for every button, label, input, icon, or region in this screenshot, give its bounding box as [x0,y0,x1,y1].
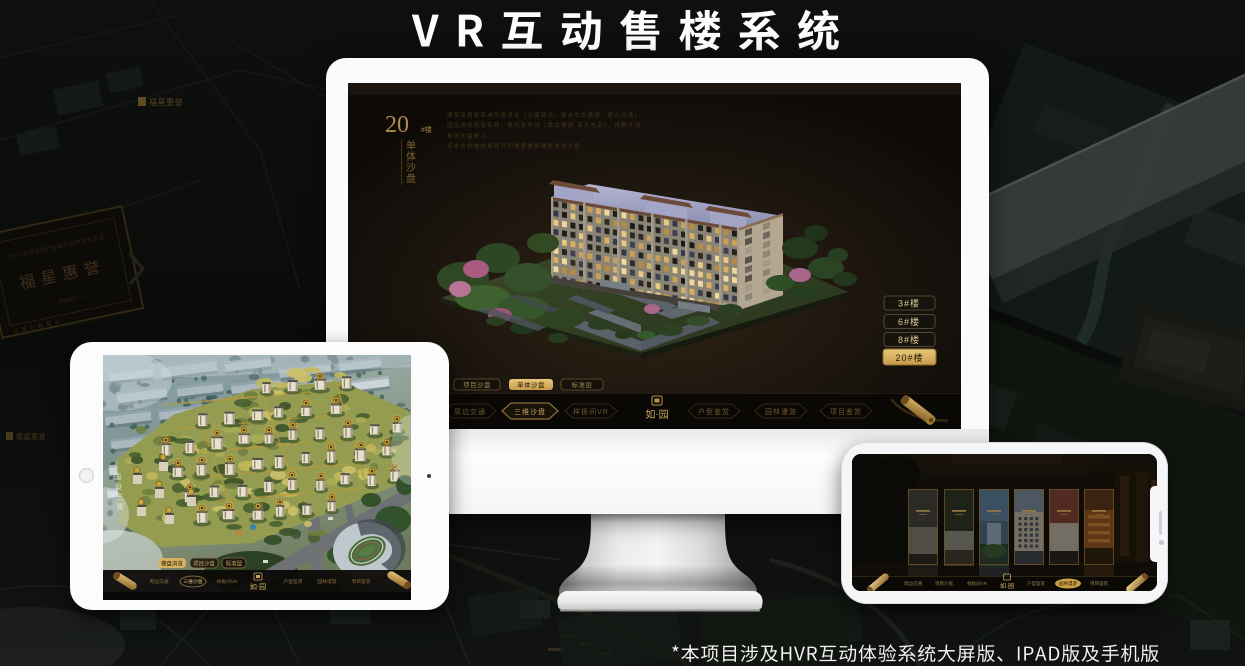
svg-text:街: 街 [117,502,124,511]
svg-text:园林漫游: 园林漫游 [317,578,336,585]
svg-text:园林漫游: 园林漫游 [765,407,797,416]
svg-text:如·园: 如·园 [1000,582,1014,590]
svg-text:建筑采用新亚洲风格设计（立面简洁，融合东方意境，匠心打造）: 建筑采用新亚洲风格设计（立面简洁，融合东方意境，匠心打造） [447,111,641,119]
svg-text:20#楼: 20#楼 [895,352,923,363]
svg-text:样板间VR: 样板间VR [573,407,609,416]
svg-text:标准层: 标准层 [226,560,243,568]
svg-text:项目鉴赏: 项目鉴赏 [351,578,370,585]
svg-text:周边交通: 周边交通 [454,407,486,416]
svg-text:户型鉴赏: 户型鉴赏 [283,578,302,585]
svg-text:园区规划疏密有致，楼间距开阔（南北通透 采光充足），视野开阔: 园区规划疏密有致，楼间距开阔（南北通透 采光充足），视野开阔。 [447,121,648,129]
svg-text:户型鉴赏: 户型鉴赏 [1027,580,1045,587]
svg-text:三维沙盘: 三维沙盘 [514,407,546,416]
svg-text:三: 三 [116,493,123,501]
svg-text:如·园: 如·园 [645,408,668,421]
svg-text:沙: 沙 [406,162,416,174]
svg-text:项目沙盘: 项目沙盘 [935,580,953,587]
svg-text:国: 国 [114,473,121,481]
svg-text:体: 体 [406,151,416,163]
svg-text:设: 设 [115,482,122,491]
svg-text:单: 单 [406,140,416,152]
svg-text:单体沙盘: 单体沙盘 [517,380,545,389]
svg-text:楼盘浏览: 楼盘浏览 [161,560,184,568]
svg-text:项目沙盘: 项目沙盘 [463,380,491,389]
svg-text:标准层: 标准层 [572,380,593,389]
svg-text:福星惠誉: 福星惠誉 [16,432,46,441]
svg-text:三维沙盘: 三维沙盘 [183,578,202,585]
svg-text:#楼: #楼 [421,125,432,134]
svg-text:项目沙盘: 项目沙盘 [193,560,216,568]
svg-text:户型鉴赏: 户型鉴赏 [698,407,730,416]
svg-text:周边交通: 周边交通 [904,580,922,587]
svg-text:8#楼: 8#楼 [898,334,920,345]
svg-text:盘: 盘 [406,172,416,185]
svg-text:如·园: 如·园 [250,582,266,591]
svg-text:20: 20 [385,112,409,138]
svg-text:项目鉴赏: 项目鉴赏 [1090,580,1108,587]
svg-text:福星惠誉: 福星惠誉 [149,97,183,107]
svg-text:单体沙盘展示。: 单体沙盘展示。 [447,132,494,140]
svg-text:园林漫游: 园林漫游 [1059,580,1077,587]
svg-text:项目鉴赏: 项目鉴赏 [830,407,862,416]
svg-text:3#楼: 3#楼 [898,298,920,309]
svg-text:点击右侧楼栋按钮可切换查看各楼栋单体沙盘: 点击右侧楼栋按钮可切换查看各楼栋单体沙盘 [447,142,581,150]
svg-text:样板间VR: 样板间VR [967,580,988,587]
svg-text:周边交通: 周边交通 [149,578,168,585]
svg-text:6#楼: 6#楼 [898,316,920,327]
svg-text:样板间VR: 样板间VR [216,578,238,585]
